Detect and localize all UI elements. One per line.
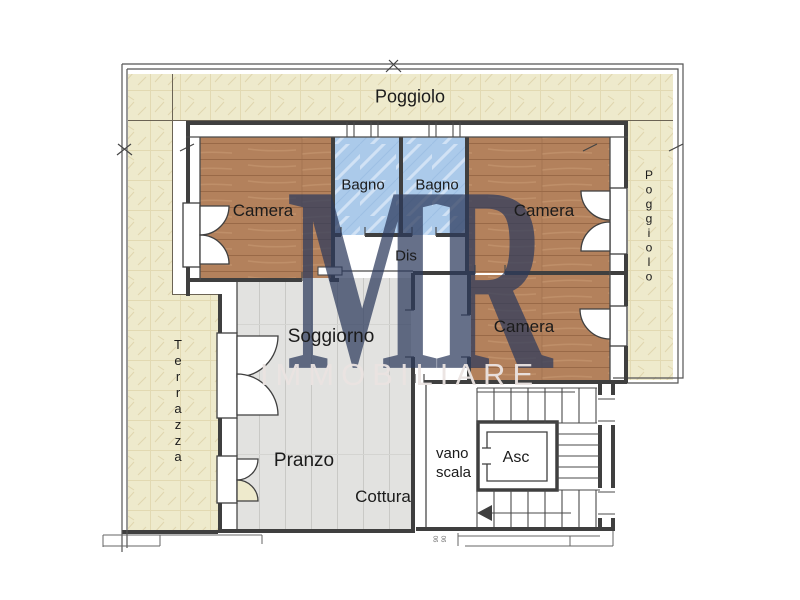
room-label-vano-scala: vano scala (436, 444, 471, 482)
floor-plan: MR IMMOBILIARE Poggiolo Camera Bagno Bag… (0, 0, 800, 600)
dimension-note-2: 90 (442, 536, 448, 543)
room-label-bagno-left: Bagno (341, 177, 384, 194)
room-label-asc: Asc (503, 449, 530, 467)
dimension-note-1: 90 (434, 536, 440, 543)
room-label-dis: Dis (395, 248, 417, 265)
room-label-vano: vano (436, 444, 471, 463)
room-label-scala: scala (436, 463, 471, 482)
room-label-pranzo: Pranzo (274, 450, 334, 472)
room-label-bagno-right: Bagno (415, 177, 458, 194)
stair-direction-arrow-icon (477, 505, 492, 521)
room-label-camera-ne: Camera (514, 201, 574, 221)
room-label-terrazza: Terrazza (171, 337, 186, 465)
room-label-cottura: Cottura (355, 487, 411, 507)
room-label-poggiolo-top: Poggiolo (375, 87, 445, 108)
room-label-camera-nw: Camera (233, 201, 293, 221)
room-label-camera-e: Camera (494, 317, 554, 337)
room-label-poggiolo-right: Poggiolo (642, 168, 656, 284)
room-label-soggiorno: Soggiorno (288, 326, 375, 348)
